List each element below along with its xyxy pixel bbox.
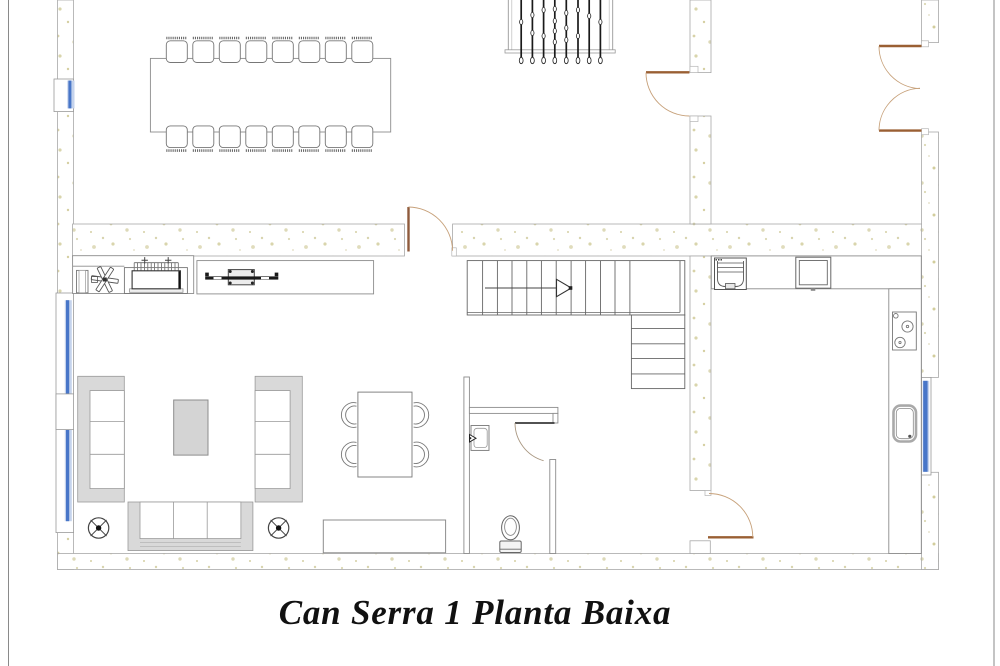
- svg-text:Can Serra 1 Planta Baixa: Can Serra 1 Planta Baixa: [279, 593, 672, 632]
